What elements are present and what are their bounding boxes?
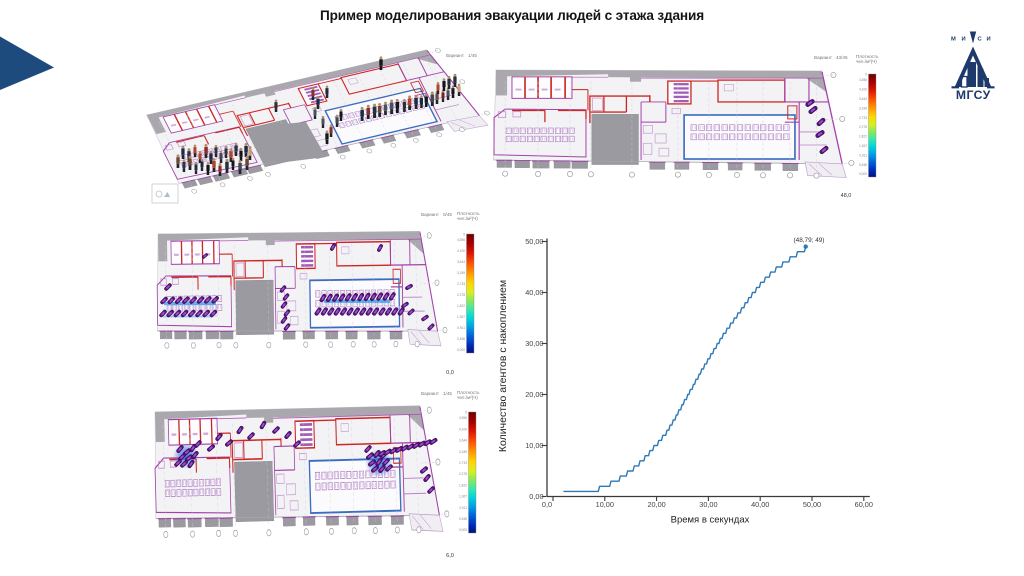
svg-text:4,100: 4,100 <box>457 249 465 253</box>
svg-text:3,644: 3,644 <box>457 260 465 264</box>
svg-text:40,00: 40,00 <box>751 500 769 509</box>
svg-text:Вариант: Вариант <box>421 212 440 217</box>
svg-text:Количество агентов с накоплени: Количество агентов с накоплением <box>497 280 509 452</box>
svg-text:МГСУ: МГСУ <box>956 88 991 102</box>
svg-text:0,000: 0,000 <box>457 348 465 352</box>
svg-text:Время в секундах: Время в секундах <box>671 515 750 526</box>
svg-text:1,367: 1,367 <box>459 495 467 499</box>
svg-text:2,733: 2,733 <box>457 282 465 286</box>
svg-text:0,911: 0,911 <box>457 326 465 330</box>
svg-text:6,0: 6,0 <box>446 553 454 559</box>
svg-text:2,733: 2,733 <box>459 461 467 465</box>
svg-text:3,189: 3,189 <box>859 106 867 110</box>
svg-text:0,911: 0,911 <box>859 153 867 157</box>
svg-text:Вариант: Вариант <box>814 55 833 60</box>
svg-text:0,000: 0,000 <box>859 172 867 176</box>
svg-text:0,456: 0,456 <box>459 517 467 521</box>
svg-text:0,0: 0,0 <box>542 500 552 509</box>
svg-text:1,367: 1,367 <box>457 315 465 319</box>
svg-text:1,822: 1,822 <box>859 135 867 139</box>
svg-text:4,556: 4,556 <box>859 78 867 82</box>
svg-text:1,822: 1,822 <box>457 304 465 308</box>
svg-text:4,556: 4,556 <box>459 416 467 420</box>
svg-text:10,00: 10,00 <box>525 441 543 450</box>
svg-text:5: 5 <box>463 233 465 237</box>
svg-text:2,733: 2,733 <box>859 116 867 120</box>
svg-text:Вариант: Вариант <box>446 53 465 58</box>
svg-text:50,00: 50,00 <box>525 237 543 246</box>
svg-text:4,100: 4,100 <box>459 427 467 431</box>
svg-text:И: И <box>987 37 991 43</box>
svg-text:10,00: 10,00 <box>596 500 614 509</box>
svg-text:1,367: 1,367 <box>859 144 867 148</box>
svg-text:3,189: 3,189 <box>457 271 465 275</box>
svg-text:0,456: 0,456 <box>859 163 867 167</box>
svg-text:0/45: 0/45 <box>443 212 452 217</box>
svg-text:чел./м²(Ч): чел./м²(Ч) <box>856 59 877 64</box>
svg-text:30,00: 30,00 <box>699 500 717 509</box>
svg-text:1/45: 1/45 <box>468 53 477 58</box>
svg-text:50,00: 50,00 <box>803 500 821 509</box>
svg-text:3,644: 3,644 <box>459 439 467 443</box>
svg-text:0,0: 0,0 <box>446 370 454 376</box>
svg-text:40,00: 40,00 <box>525 288 543 297</box>
svg-text:2,278: 2,278 <box>457 293 465 297</box>
svg-text:С: С <box>978 37 983 43</box>
svg-text:2,278: 2,278 <box>459 472 467 476</box>
svg-text:4,556: 4,556 <box>457 238 465 242</box>
svg-text:чел./м²(Ч): чел./м²(Ч) <box>457 216 478 221</box>
svg-text:3,189: 3,189 <box>459 450 467 454</box>
svg-text:Вариант: Вариант <box>421 391 440 396</box>
svg-text:0,911: 0,911 <box>459 506 467 510</box>
svg-text:48,0: 48,0 <box>841 193 852 199</box>
svg-text:4,100: 4,100 <box>859 88 867 92</box>
svg-text:(48,79; 49): (48,79; 49) <box>794 237 825 244</box>
svg-text:43/45: 43/45 <box>836 55 848 60</box>
svg-text:60,00: 60,00 <box>855 500 873 509</box>
svg-text:5: 5 <box>465 411 467 415</box>
svg-text:3,644: 3,644 <box>859 97 867 101</box>
svg-text:2,278: 2,278 <box>859 125 867 129</box>
svg-text:5: 5 <box>865 73 867 77</box>
svg-text:20,00: 20,00 <box>647 500 665 509</box>
svg-text:чел./м²(Ч): чел./м²(Ч) <box>457 395 478 400</box>
svg-text:0,456: 0,456 <box>457 337 465 341</box>
svg-text:1/45: 1/45 <box>443 391 452 396</box>
svg-text:0,000: 0,000 <box>459 528 467 532</box>
svg-text:М: М <box>951 37 956 43</box>
svg-text:20,00: 20,00 <box>525 390 543 399</box>
svg-text:И: И <box>962 37 966 43</box>
svg-text:1,822: 1,822 <box>459 483 467 487</box>
svg-text:30,00: 30,00 <box>525 339 543 348</box>
